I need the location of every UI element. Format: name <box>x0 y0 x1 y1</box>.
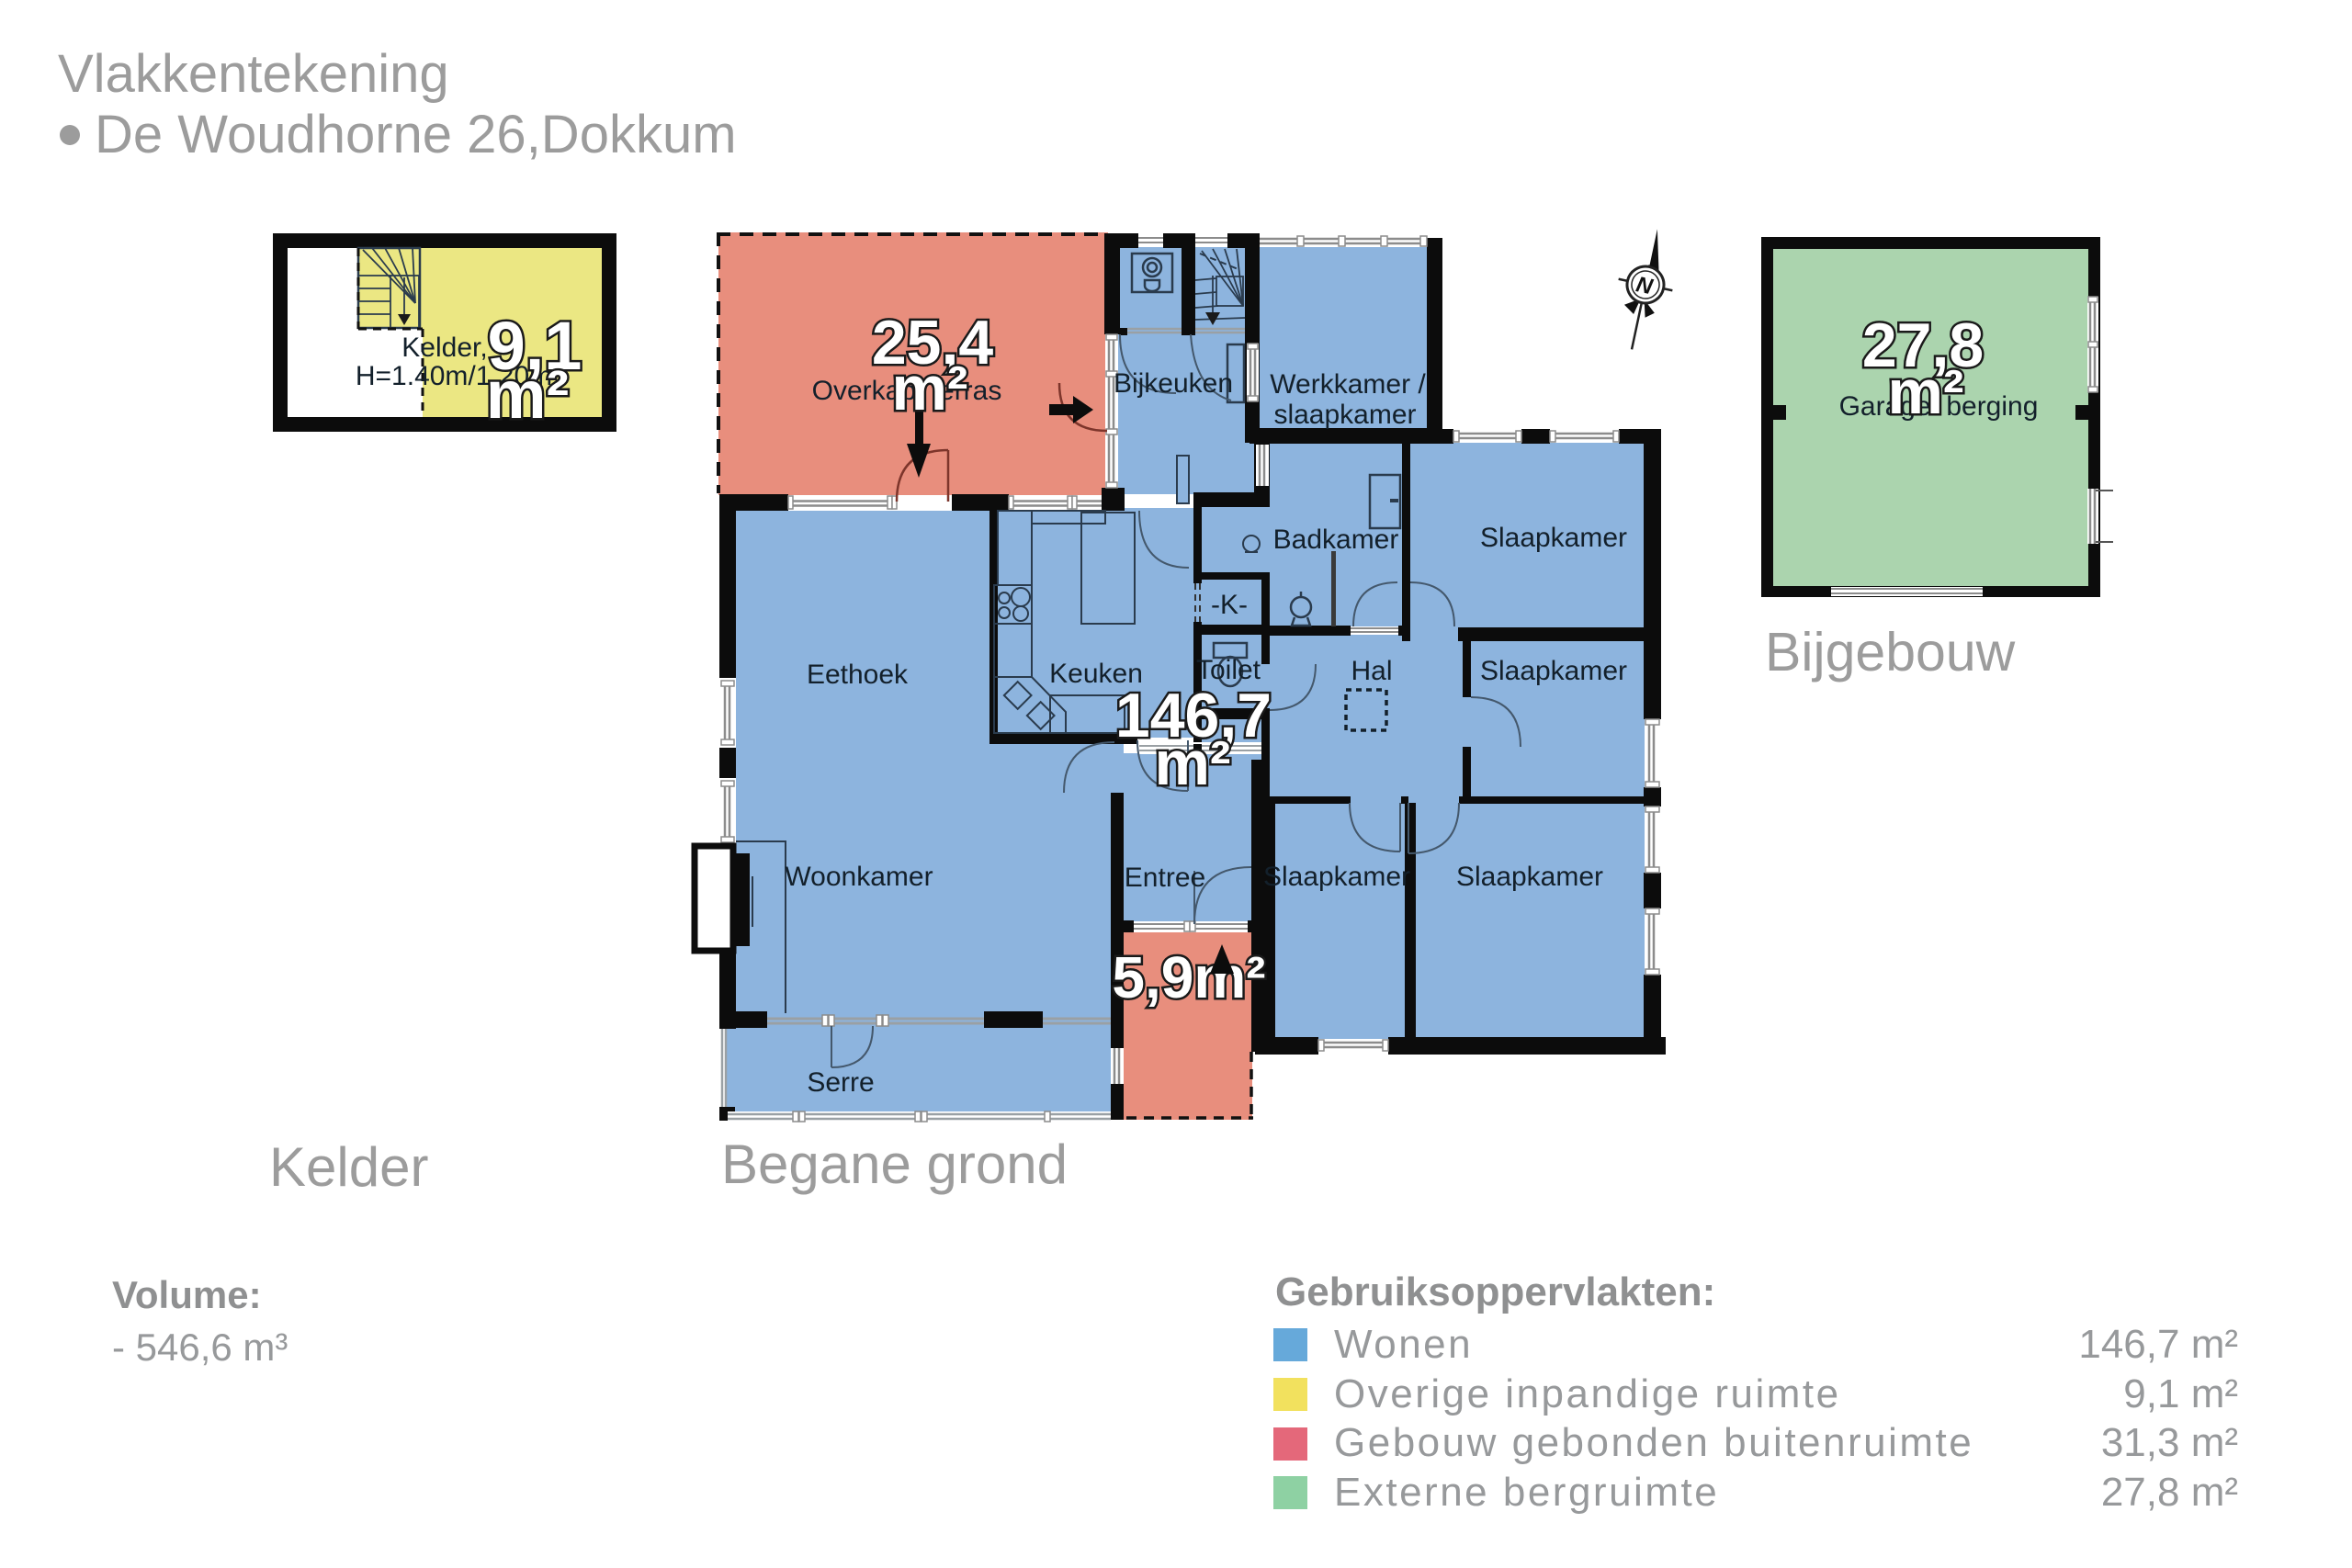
svg-text:Hal: Hal <box>1351 656 1392 686</box>
svg-text:Volume:: Volume: <box>112 1273 262 1316</box>
svg-text:Overige inpandige ruimte: Overige inpandige ruimte <box>1334 1371 1841 1416</box>
svg-text:slaapkamer: slaapkamer <box>1273 400 1416 430</box>
svg-text:Woonkamer: Woonkamer <box>785 862 933 892</box>
svg-text:5,9m²: 5,9m² <box>1112 944 1265 1010</box>
svg-text:Vlakkentekening: Vlakkentekening <box>58 44 449 104</box>
svg-text:Bijgebouw: Bijgebouw <box>1765 622 2016 682</box>
svg-text:Begane grond: Begane grond <box>721 1134 1068 1195</box>
svg-text:m²: m² <box>1887 357 1963 427</box>
svg-text:Kelder: Kelder <box>269 1136 428 1198</box>
svg-text:Slaapkamer: Slaapkamer <box>1263 862 1410 892</box>
svg-text:- 546,6 m³: - 546,6 m³ <box>112 1325 288 1369</box>
svg-text:Kelder,: Kelder, <box>401 333 487 363</box>
svg-text:Bijkeuken: Bijkeuken <box>1114 368 1233 399</box>
svg-text:Wonen: Wonen <box>1334 1322 1473 1367</box>
svg-text:Slaapkamer: Slaapkamer <box>1456 862 1603 892</box>
svg-text:m²: m² <box>1154 728 1230 798</box>
svg-text:Slaapkamer: Slaapkamer <box>1480 523 1627 553</box>
svg-text:Werkkamer /: Werkkamer / <box>1270 369 1426 400</box>
svg-text:Slaapkamer: Slaapkamer <box>1480 656 1627 686</box>
svg-text:Entree: Entree <box>1125 863 1205 893</box>
svg-text:31,3 m²: 31,3 m² <box>2101 1420 2238 1465</box>
svg-text:9,1 m²: 9,1 m² <box>2123 1371 2238 1416</box>
svg-text:146,7 m²: 146,7 m² <box>2078 1322 2238 1367</box>
svg-text:Gebruiksoppervlakten:: Gebruiksoppervlakten: <box>1275 1269 1715 1314</box>
svg-text:Eethoek: Eethoek <box>807 660 909 690</box>
svg-text:m²: m² <box>891 354 967 423</box>
svg-text:Externe bergruimte: Externe bergruimte <box>1334 1470 1719 1515</box>
svg-text:m²: m² <box>486 356 569 433</box>
svg-text:De Woudhorne 26,Dokkum: De Woudhorne 26,Dokkum <box>95 105 737 164</box>
svg-text:27,8 m²: 27,8 m² <box>2101 1470 2238 1515</box>
svg-text:Badkamer: Badkamer <box>1273 525 1399 555</box>
svg-text:Gebouw gebonden buitenruimte: Gebouw gebonden buitenruimte <box>1334 1420 1973 1465</box>
svg-text:-K-: -K- <box>1211 590 1248 620</box>
svg-text:Serre: Serre <box>807 1067 874 1098</box>
